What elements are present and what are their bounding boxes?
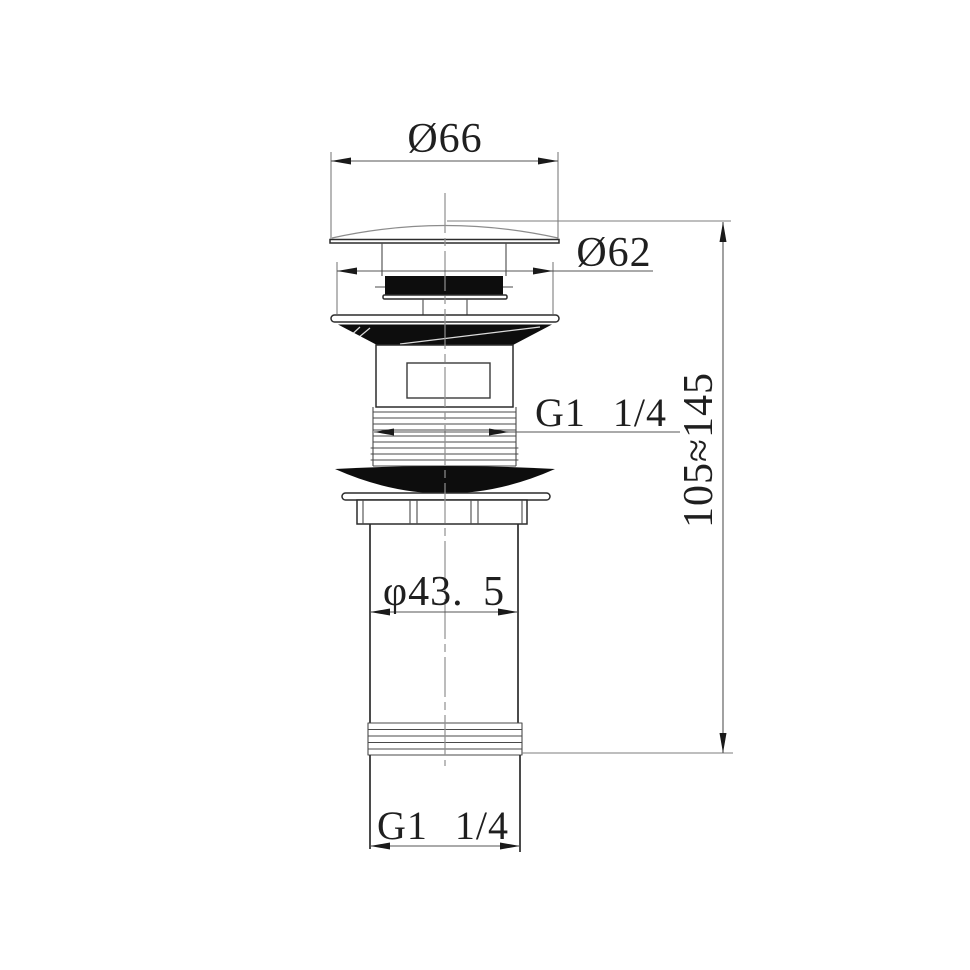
dim-tail-thread: G1 1/4 (370, 803, 520, 850)
dim-overall-height-label: 105≈145 (676, 372, 722, 528)
drawing-canvas: Ø66 Ø62 G1 1/4 φ43. 5 G1 1/4 105≈145 (0, 0, 970, 970)
dim-flange-arrow-left (337, 268, 357, 275)
cap-seal (375, 276, 513, 315)
dim-cap-diameter-label: Ø66 (407, 116, 482, 162)
dim-tail-thread-label: G1 1/4 (377, 803, 509, 848)
dim-height-arrow-top (720, 222, 727, 242)
pop-up-drain-technical-drawing: Ø66 Ø62 G1 1/4 φ43. 5 G1 1/4 105≈145 (0, 0, 970, 970)
overflow-hole (407, 363, 490, 398)
dim-tail-diameter: φ43. 5 (370, 569, 518, 616)
dim-height-arrow-bottom (720, 733, 727, 753)
seal-washer (385, 276, 503, 295)
dim-flange-diameter-label: Ø62 (576, 230, 651, 276)
dim-flange-arrow-right (533, 268, 553, 275)
dim-tail-diameter-label: φ43. 5 (383, 569, 505, 615)
backnut (357, 500, 527, 524)
dim-body-thread-label: G1 1/4 (535, 390, 667, 435)
dim-cap-arrow-left (331, 158, 351, 165)
metal-washer (342, 493, 550, 500)
tailpipe-walls (370, 524, 518, 723)
dim-cap-arrow-right (538, 158, 558, 165)
